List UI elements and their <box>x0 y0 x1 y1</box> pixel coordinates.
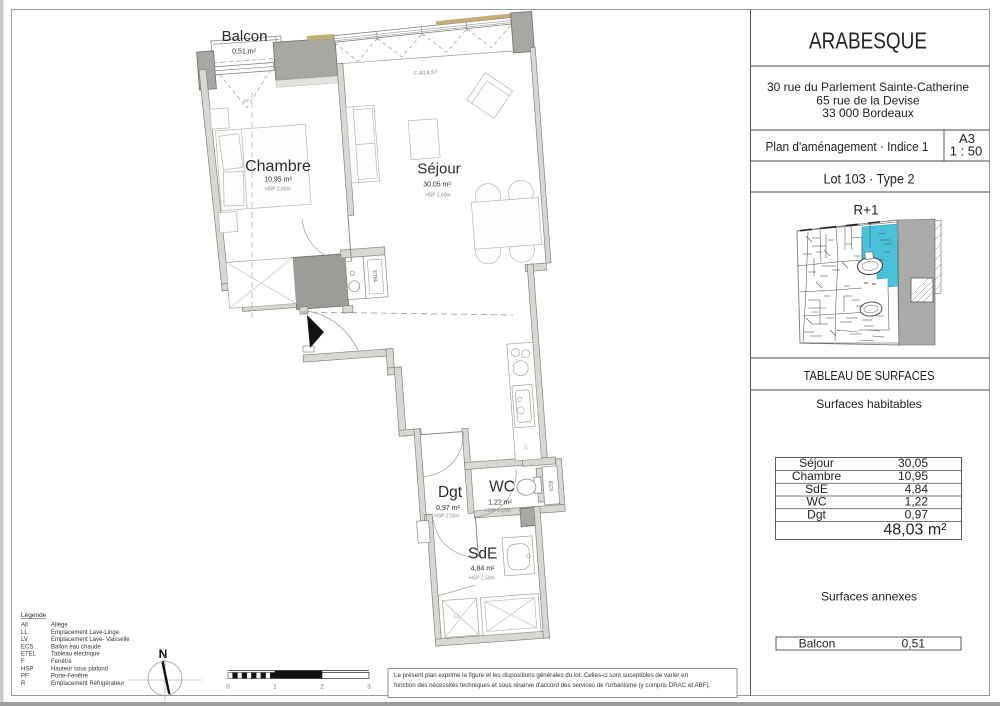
svg-text:Séjour: Séjour <box>799 456 834 470</box>
svg-text:Emplacement Lave- Vaisselle: Emplacement Lave- Vaisselle <box>51 637 130 643</box>
svg-text:Tableau électrique: Tableau électrique <box>51 652 100 658</box>
svg-text:Emplacement Réfrigérateur: Emplacement Réfrigérateur <box>51 681 124 687</box>
svg-text:30,05: 30,05 <box>898 456 928 470</box>
svg-text:Dgt: Dgt <box>807 507 826 521</box>
svg-text:Chambre: Chambre <box>245 158 311 175</box>
svg-text:ECS: ECS <box>547 481 554 492</box>
svg-text:Séjour: Séjour <box>417 161 460 178</box>
svg-text:HSP 2,50m: HSP 2,50m <box>434 514 459 520</box>
svg-text:0,51 m²: 0,51 m² <box>232 49 256 56</box>
svg-text:HSP 2,60m: HSP 2,60m <box>265 187 290 193</box>
svg-text:LV: LV <box>523 444 528 450</box>
svg-text:Emplacement Lave-Linge: Emplacement Lave-Linge <box>51 630 120 636</box>
svg-text:Ballon eau chaude: Ballon eau chaude <box>51 644 101 650</box>
svg-text:3: 3 <box>367 684 371 691</box>
svg-text:0,51: 0,51 <box>902 637 926 651</box>
svg-text:Lot 103 · Type 2: Lot 103 · Type 2 <box>824 172 915 187</box>
svg-text:HSP 2,50m: HSP 2,50m <box>485 508 510 514</box>
svg-text:Légende: Légende <box>21 612 47 619</box>
svg-text:R+1: R+1 <box>853 203 878 218</box>
svg-text:4,84 m²: 4,84 m² <box>471 566 495 573</box>
svg-text:Balcon: Balcon <box>799 637 836 651</box>
svg-text:Surfaces annexes: Surfaces annexes <box>821 590 917 604</box>
svg-text:10,95 m²: 10,95 m² <box>264 177 292 184</box>
svg-text:HSP 2,50m: HSP 2,50m <box>469 576 494 582</box>
svg-text:48,03 m²: 48,03 m² <box>883 522 947 539</box>
svg-text:Plan d'aménagement · Indice 1: Plan d'aménagement · Indice 1 <box>766 139 929 154</box>
svg-text:LL: LL <box>21 630 28 636</box>
svg-text:Porte-Fenêtre: Porte-Fenêtre <box>51 674 89 680</box>
svg-text:ECS: ECS <box>21 644 33 650</box>
svg-text:fonction des nécessités techni: fonction des nécessités techniques et so… <box>394 682 711 689</box>
svg-text:R: R <box>21 681 26 687</box>
svg-text:Fenêtre: Fenêtre <box>51 659 72 665</box>
svg-text:PF: PF <box>243 98 249 103</box>
svg-text:30 rue du Parlement Sainte-Cat: 30 rue du Parlement Sainte-Catherine <box>767 80 969 94</box>
svg-text:Allège: Allège <box>51 623 68 629</box>
svg-text:LV: LV <box>21 637 28 643</box>
svg-text:F: F <box>21 659 25 665</box>
svg-text:0,97 m²: 0,97 m² <box>436 505 460 512</box>
svg-text:1: 1 <box>273 684 277 691</box>
svg-text:TABLEAU DE SURFACES: TABLEAU DE SURFACES <box>804 368 935 383</box>
svg-text:30,05 m²: 30,05 m² <box>423 182 451 189</box>
svg-text:Hauteur sous plafond: Hauteur sous plafond <box>51 666 108 672</box>
svg-text:All: All <box>21 623 28 629</box>
svg-text:ETEL: ETEL <box>21 652 37 658</box>
svg-text:33 000 Bordeaux: 33 000 Bordeaux <box>822 106 913 120</box>
svg-text:1 : 50: 1 : 50 <box>950 144 983 159</box>
svg-text:HSP: HSP <box>21 666 33 672</box>
svg-text:ARABESQUE: ARABESQUE <box>809 28 927 54</box>
svg-text:Balcon: Balcon <box>222 28 268 45</box>
svg-text:Surfaces habitables: Surfaces habitables <box>816 397 921 411</box>
svg-text:LL: LL <box>454 614 460 620</box>
svg-text:0: 0 <box>226 684 230 691</box>
svg-text:2: 2 <box>320 684 324 691</box>
svg-text:ETEL: ETEL <box>371 270 378 283</box>
svg-text:WC: WC <box>489 479 515 496</box>
svg-text:1,22 m²: 1,22 m² <box>488 500 512 507</box>
svg-text:SdE: SdE <box>468 546 497 563</box>
svg-text:PF: PF <box>21 674 29 680</box>
svg-text:N: N <box>159 647 168 661</box>
svg-text:HSP 2,60m: HSP 2,60m <box>425 193 450 199</box>
svg-text:Le présent plan exprime la fig: Le présent plan exprime la figure et les… <box>394 672 689 679</box>
svg-text:Dgt: Dgt <box>438 484 463 501</box>
svg-text:0,97: 0,97 <box>905 507 929 521</box>
